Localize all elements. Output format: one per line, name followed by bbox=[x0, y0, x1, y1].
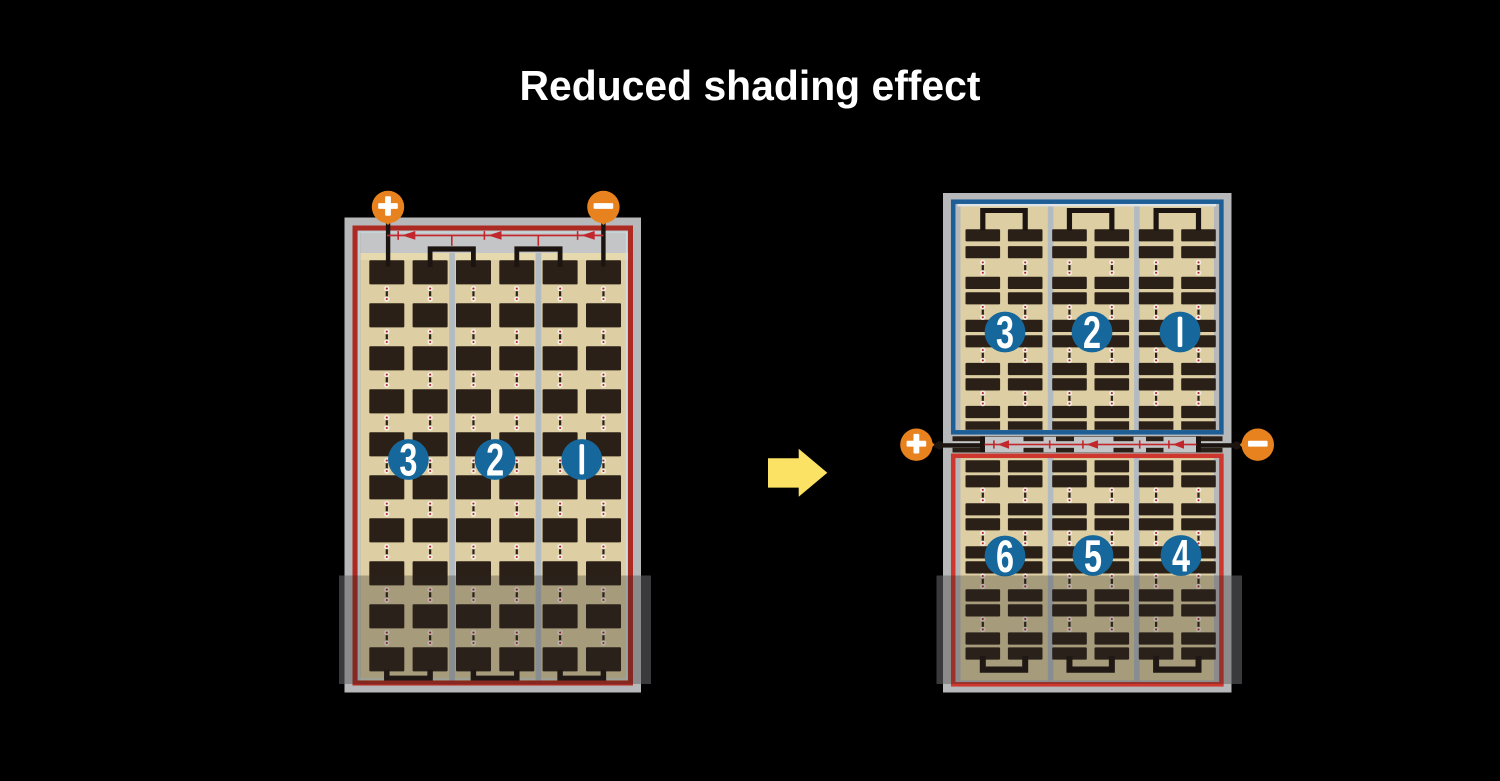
svg-text:6: 6 bbox=[996, 533, 1014, 582]
svg-text:3: 3 bbox=[399, 437, 417, 486]
svg-text:5: 5 bbox=[1084, 533, 1102, 582]
svg-text:3: 3 bbox=[996, 309, 1014, 358]
svg-text:Reduced shading effect: Reduced shading effect bbox=[520, 62, 981, 109]
svg-text:2: 2 bbox=[486, 437, 504, 486]
svg-text:2: 2 bbox=[1083, 309, 1101, 358]
svg-text:4: 4 bbox=[1172, 533, 1190, 582]
